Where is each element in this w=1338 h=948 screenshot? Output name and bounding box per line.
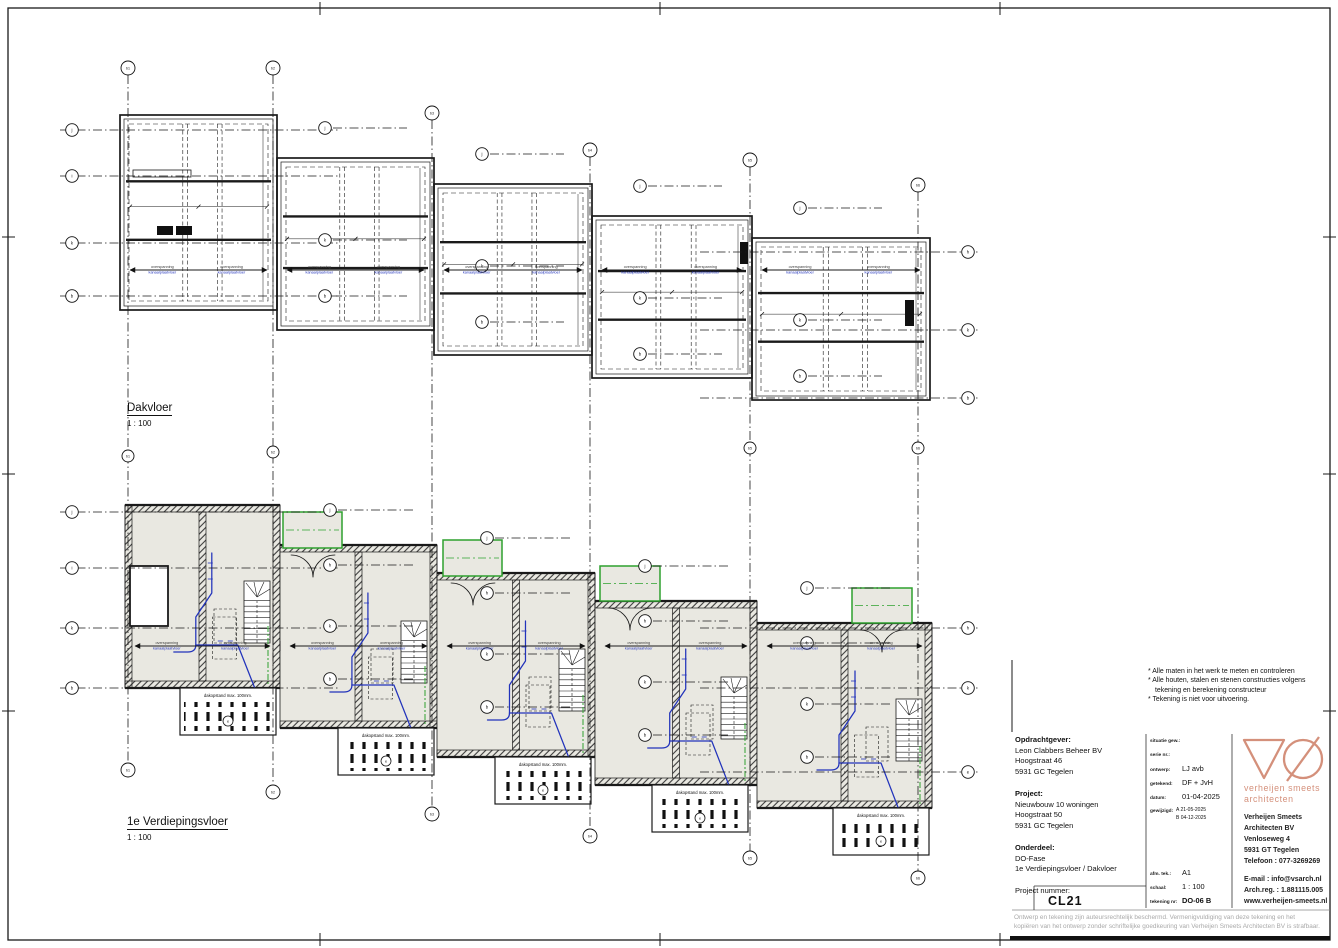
meta-label-tekening: tekening nr: [1150,900,1177,905]
part-line: DO-Fase [1015,854,1117,865]
meta-label-schaal: schaal: [1150,886,1167,891]
span-label-line1: overspanning [377,265,400,269]
plan-title-dakvloer: Dakvloer 1 : 100 [127,398,172,428]
dak-block-inner [596,220,748,374]
span-label-line1: overspanning [627,641,650,645]
grid-bubble-label: b5 [748,857,752,861]
wall-band [273,505,280,688]
span-label-line2: kanaalplaatvloer [865,271,893,275]
grid-bubble-label: b5 [748,159,752,163]
wall-band [925,623,932,808]
firm-line: Telefoon : 077-3269269 [1244,856,1320,867]
client-block: Opdrachtgever: Leon Clabbers Beheer BV H… [1015,735,1102,777]
balcony-label: dakopstand max. 100mm. [519,762,567,767]
span-label-line2: kanaalplaatvloer [378,647,406,651]
firm-line: E-mail : info@vsarch.nl [1244,874,1327,885]
copyright-disclaimer: Ontwerp en tekening zijn auteursrechteli… [1014,913,1338,931]
grid-bubble-label: j [806,586,808,591]
roof-vent [157,226,173,235]
grid-bubble-label: e [385,760,387,764]
dak-block-inner [438,188,588,351]
grid-bubble-label: j [71,510,73,515]
grid-bubble-label: b2 [271,451,275,455]
span-label-line1: overspanning [867,265,890,269]
grid-bubble-label: j [71,128,73,133]
wall-band [513,580,520,750]
span-label-line2: kanaalplaatvloer [867,647,895,651]
grid-bubble-label: j [639,184,641,189]
dak-block-dashed [601,225,743,369]
grid-bubble-label: b2 [271,791,275,795]
note-line: * Alle maten in het werk te meten en con… [1148,667,1338,676]
general-notes: * Alle maten in het werk te meten en con… [1148,667,1338,705]
note-line: * Alle houten, stalen en stenen construc… [1148,676,1338,685]
note-line: * Tekening is niet voor uitvoering. [1148,695,1338,704]
meta-label-gewijzigd: gewijzigd: [1150,809,1173,814]
span-label-line2: kanaalplaatvloer [218,271,246,275]
span-label-line2: kanaalplaatvloer [463,271,491,275]
span-label-line2: kanaalplaatvloer [790,647,818,651]
firm-line: Verheijen Smeets [1244,812,1320,823]
dak-block-inner [124,119,273,306]
span-label-line1: overspanning [311,641,334,645]
grid-bubble-label: j [799,206,801,211]
dak-block-dashed [443,193,583,346]
roof-vent [740,242,748,264]
span-label-line2: kanaalplaatvloer [375,271,403,275]
firm-line: Architecten BV [1244,823,1320,834]
span-label-line1: overspanning [224,641,247,645]
span-label-line1: overspanning [468,641,491,645]
span-label-line2: kanaalplaatvloer [221,647,249,651]
grid-bubble-label: b1 [126,67,130,71]
grid-bubble-label: b1 [126,769,130,773]
span-label-line1: overspanning [308,265,331,269]
logo-caption-line: architecten [1244,794,1320,805]
project-line: 5931 GC Tegelen [1015,821,1098,832]
dak-block-outline [434,184,592,355]
grid-bubble-label: b6 [916,877,920,881]
meta-label-status: situatie gew.: [1150,739,1180,744]
meta-label-datum: datum: [1150,796,1166,801]
dak-block-outline [120,115,277,310]
grid-bubble-label: b4 [588,835,592,839]
project-number: CL21 [1048,894,1083,908]
span-label-line2: kanaalplaatvloer [149,271,177,275]
dak-block-outline [277,158,434,330]
grid-bubble-label: e [542,789,544,793]
grid-bubble-label: b3 [430,813,434,817]
span-label-line2: kanaalplaatvloer [535,647,563,651]
grid-bubble-label: j [486,536,488,541]
drawing-sheet: dakopstand max. 100mm.edakopstand max. 1… [0,0,1338,948]
disclaimer-line: Ontwerp en tekening zijn auteursrechteli… [1014,913,1338,922]
grid-bubble-label: i [72,174,73,179]
span-label-line1: overspanning [151,265,174,269]
span-label-line1: overspanning [789,265,812,269]
firm-line: 5931 GT Tegelen [1244,845,1320,856]
meta-value-schaal: 1 : 100 [1182,882,1205,891]
client-line: Hoogstraat 46 [1015,756,1102,767]
project-heading: Project: [1015,789,1098,800]
span-label-line2: kanaalplaatvloer [786,271,814,275]
wall-notch [130,566,168,626]
dak-block-dashed [286,167,425,321]
plan-scale-text: 1 : 100 [127,419,172,428]
span-label-line1: overspanning [380,641,403,645]
wall-band [841,630,848,801]
title-block-bottom-bar [1010,936,1330,940]
meta-value-tekening: DO-06 B [1182,896,1211,905]
firm-line: Arch.reg. : 1.881115.005 [1244,885,1327,896]
grid-bubble-label: b5 [748,447,752,451]
span-label-line2: kanaalplaatvloer [625,647,653,651]
part-heading: Onderdeel: [1015,843,1117,854]
grid-bubble-label: j [324,126,326,131]
grid-bubble-label: j [481,152,483,157]
span-label-line1: overspanning [155,641,178,645]
wall-band [355,552,362,721]
span-label-line1: overspanning [694,265,717,269]
roof-vent [176,226,192,235]
span-label-line2: kanaalplaatvloer [692,271,720,275]
span-label-line2: kanaalplaatvloer [621,271,649,275]
note-line: tekening en berekening constructeur [1148,686,1338,695]
dak-block-inner [756,242,926,396]
project-block: Project: Nieuwbouw 10 woningen Hoogstraa… [1015,789,1098,831]
firm-line: Venloseweg 4 [1244,834,1320,845]
firm-address: Verheijen Smeets Architecten BV Venlosew… [1244,812,1320,867]
client-heading: Opdrachtgever: [1015,735,1102,746]
dak-block-inner [281,162,430,326]
client-line: Leon Clabbers Beheer BV [1015,746,1102,757]
grid-bubble-label: b6 [916,184,920,188]
drawing-canvas: dakopstand max. 100mm.edakopstand max. 1… [0,0,1338,948]
meta-label-serie: serie nr.: [1150,753,1170,758]
part-block: Onderdeel: DO-Fase 1e Verdiepingsvloer /… [1015,843,1117,875]
roof-vent [905,300,914,326]
span-label-line2: kanaalplaatvloer [696,647,724,651]
span-label-line1: overspanning [870,641,893,645]
grid-bubble-label: b6 [916,447,920,451]
span-label-line1: overspanning [624,265,647,269]
wall-band [430,545,437,728]
grid-bubble-label: b2 [271,67,275,71]
span-label-line1: overspanning [465,265,488,269]
balcony-label: dakopstand max. 100mm. [676,790,724,795]
span-label-line2: kanaalplaatvloer [306,271,334,275]
firm-contact: E-mail : info@vsarch.nl Arch.reg. : 1.88… [1244,874,1327,907]
plan-title-verdiepingsvloer: 1e Verdiepingsvloer 1 : 100 [127,812,228,842]
wall-band [750,601,757,785]
meta-value-rev-a: A 21-05-2025 [1176,807,1206,813]
grid-bubble-label: j [329,508,331,513]
client-line: 5931 GC Tegelen [1015,767,1102,778]
balcony-label: dakopstand max. 100mm. [204,693,252,698]
meta-value-getekend: DF + JvH [1182,778,1213,787]
balcony-label: dakopstand max. 100mm. [362,733,410,738]
span-label-line1: overspanning [535,265,558,269]
wall-band [588,573,595,757]
logo-triangle [1244,740,1284,778]
wall-band [199,512,206,681]
wall-band [673,608,680,778]
span-label-line2: kanaalplaatvloer [532,271,560,275]
grid-bubble-label: i [72,566,73,571]
meta-value-ontwerp: LJ avb [1182,764,1204,773]
grid-bubble-label: e [699,817,701,821]
meta-label-ontwerp: ontwerp: [1150,768,1170,773]
span-label-line2: kanaalplaatvloer [153,647,181,651]
logo-caption: verheijen smeets architecten [1244,783,1320,805]
grid-bubble-label: j [644,564,646,569]
meta-value-rev-b: B 04-12-2025 [1176,815,1206,821]
grid-bubble-label: e [880,840,882,844]
project-line: Hoogstraat 50 [1015,810,1098,821]
grid-bubble-label: b4 [588,149,592,153]
grid-bubble-label: b1 [126,455,130,459]
span-label-line1: overspanning [220,265,243,269]
span-label-line1: overspanning [538,641,561,645]
part-line: 1e Verdiepingsvloer / Dakvloer [1015,864,1117,875]
span-label-line2: kanaalplaatvloer [309,647,337,651]
balcony-label: dakopstand max. 100mm. [857,813,905,818]
disclaimer-line: kopiëren van het ontwerp zonder schrifte… [1014,922,1338,931]
span-label-line1: overspanning [793,641,816,645]
span-label-line2: kanaalplaatvloer [466,647,494,651]
project-line: Nieuwbouw 10 woningen [1015,800,1098,811]
meta-value-formaat: A1 [1182,868,1191,877]
meta-label-getekend: getekend: [1150,782,1173,787]
plan-title-text: 1e Verdiepingsvloer [127,816,228,830]
plan-title-text: Dakvloer [127,402,172,416]
plan-scale-text: 1 : 100 [127,833,228,842]
firm-line: www.verheijen-smeets.nl [1244,896,1327,907]
meta-label-formaat: afm. tek.: [1150,872,1171,877]
span-label-line1: overspanning [699,641,722,645]
meta-value-datum: 01-04-2025 [1182,792,1220,801]
grid-bubble-label: b3 [430,112,434,116]
grid-bubble-label: e [227,720,229,724]
logo-caption-line: verheijen smeets [1244,783,1320,794]
dak-block-dashed [761,247,921,391]
